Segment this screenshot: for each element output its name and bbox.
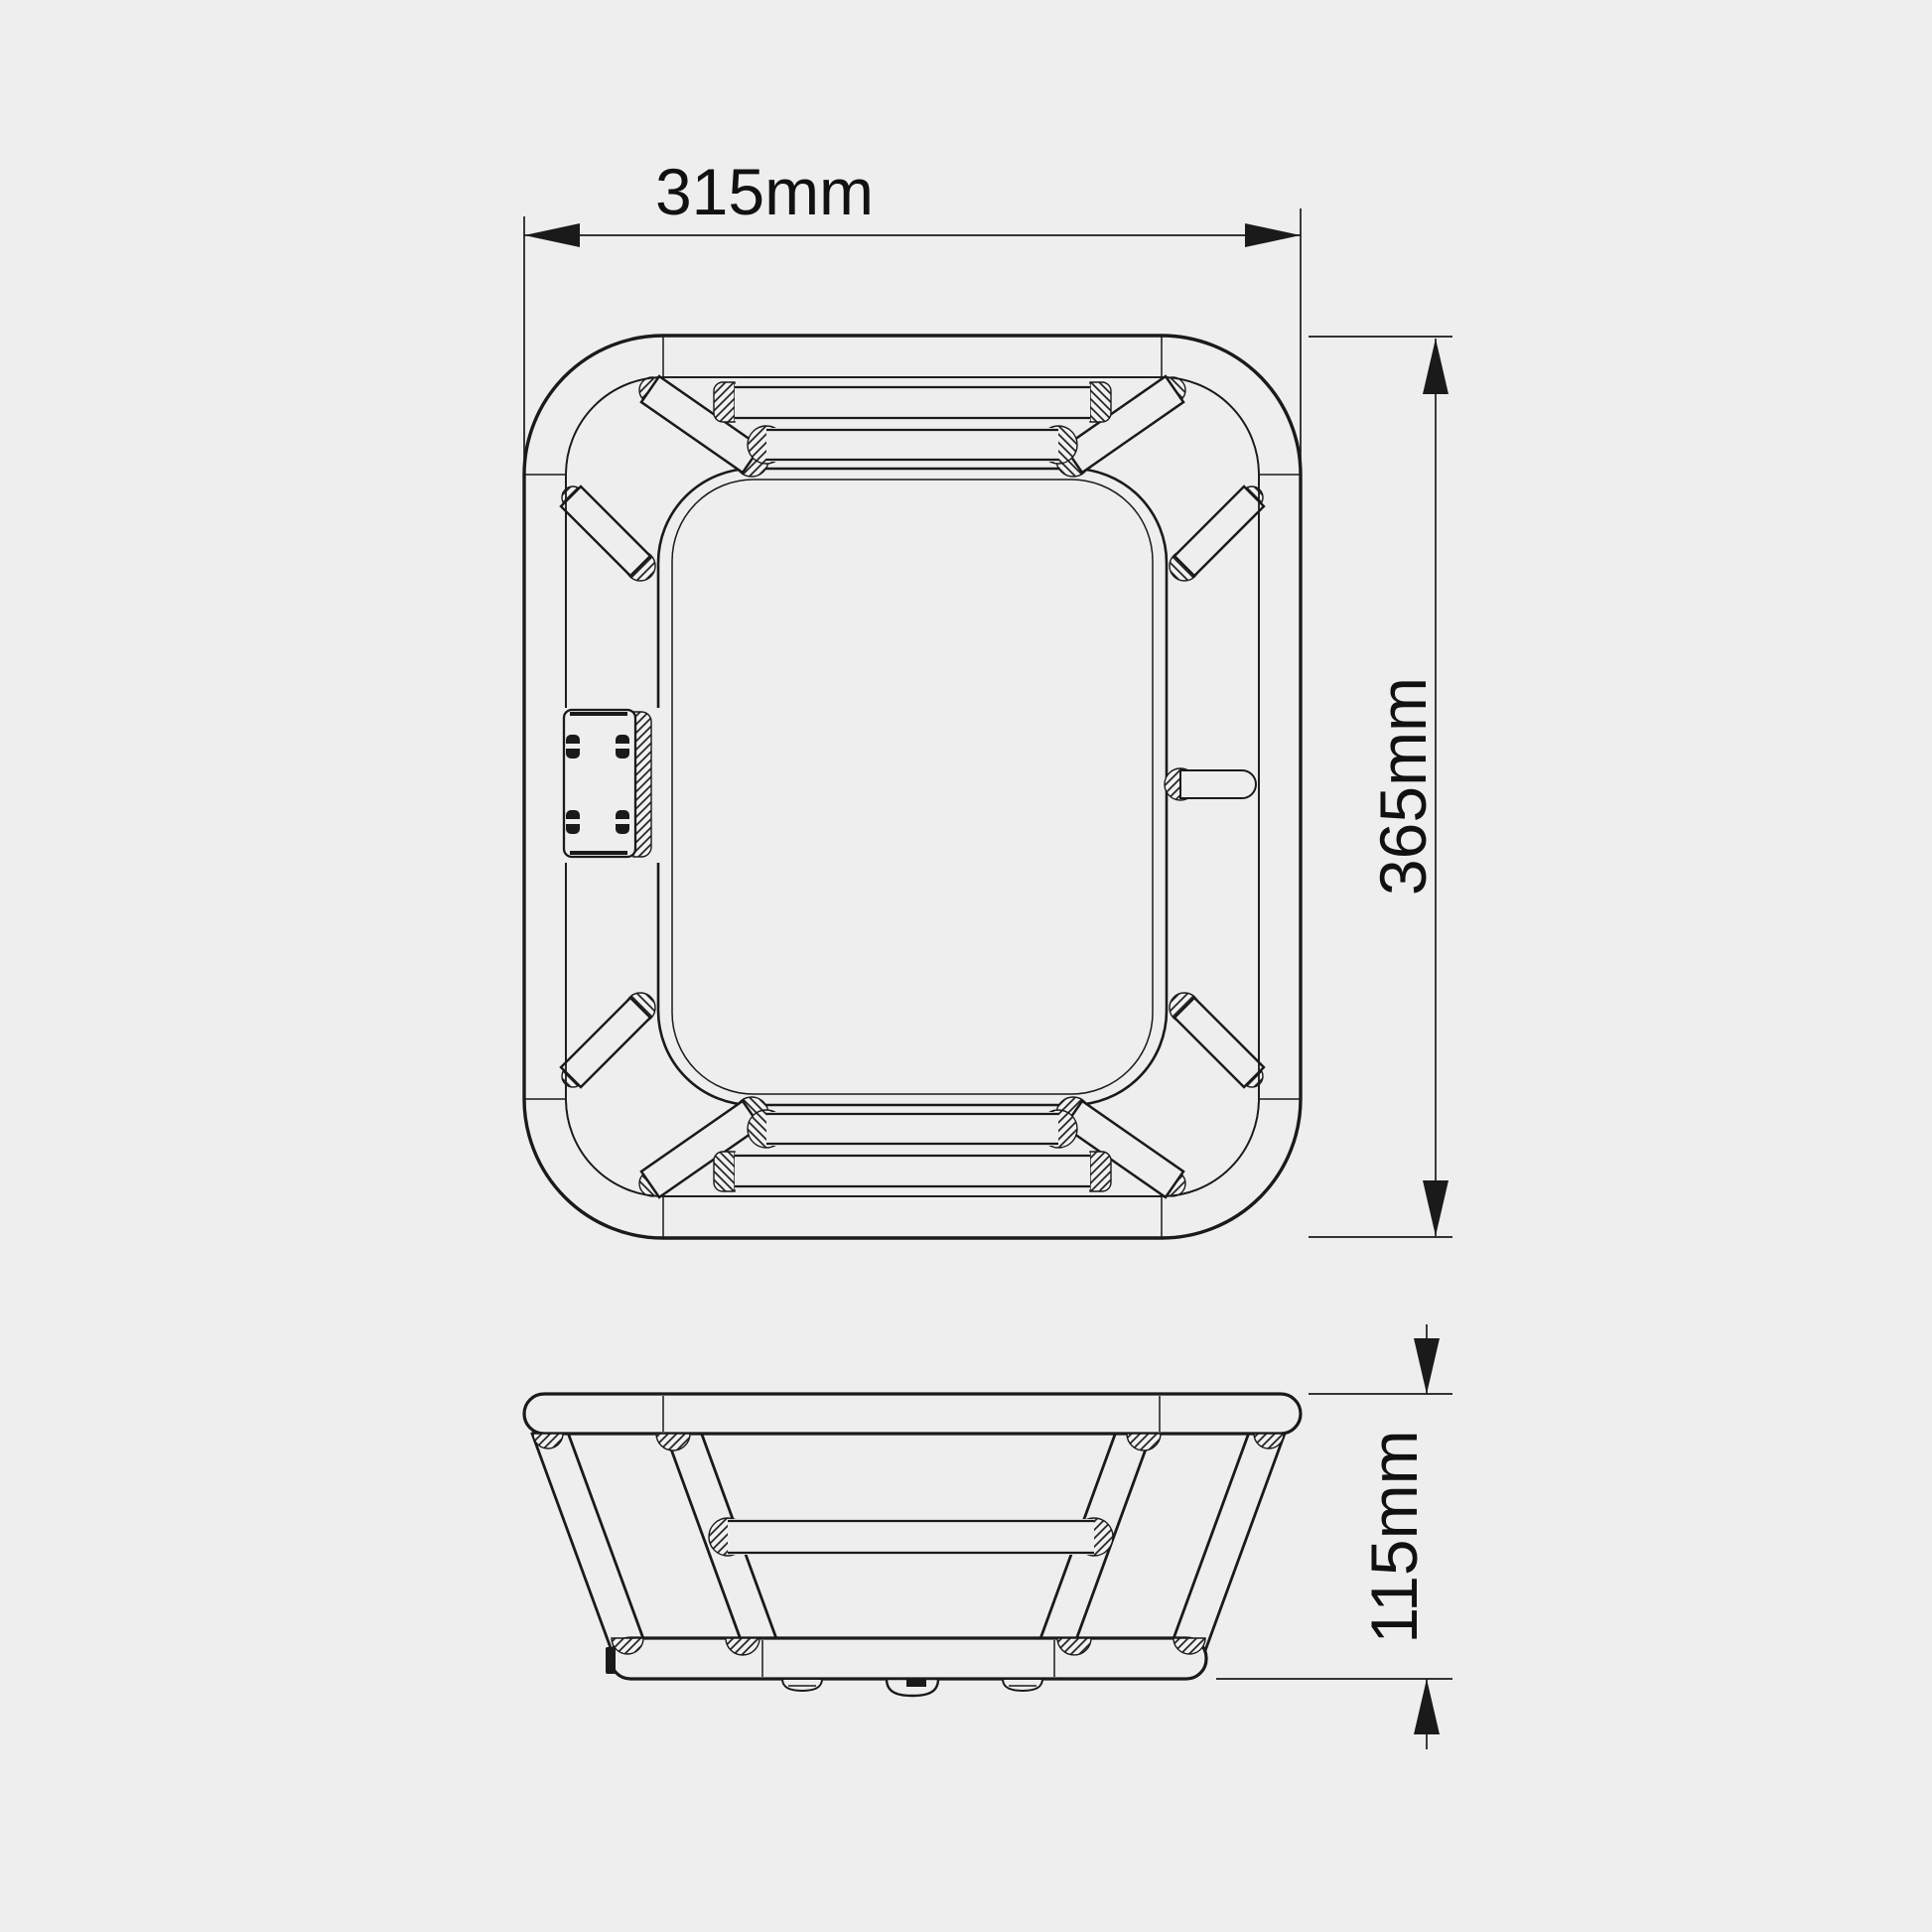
arrowhead-up (1423, 339, 1449, 394)
arrowhead-right (1245, 223, 1301, 247)
plate-face (564, 710, 635, 857)
side-peg (1165, 768, 1256, 800)
cross-rod (709, 1518, 1113, 1556)
arrowhead-left (524, 223, 580, 247)
arrowhead-down (1414, 1338, 1440, 1394)
arrowhead-up (1414, 1679, 1440, 1734)
side-view (524, 1394, 1301, 1696)
end-tab (606, 1647, 616, 1674)
plan-view (524, 336, 1301, 1238)
depth-label: 115mm (1357, 1430, 1431, 1643)
arrowhead-down (1423, 1180, 1449, 1236)
page: 315mm 365mm 115mm (0, 0, 1932, 1932)
foot (1003, 1679, 1042, 1691)
mounting-plate (562, 708, 661, 863)
depth-dimension: 115mm (1216, 1324, 1452, 1749)
width-label: 315mm (655, 155, 874, 228)
height-label: 365mm (1366, 677, 1440, 896)
foot (782, 1679, 822, 1691)
height-dimension: 365mm (1309, 337, 1452, 1237)
bottom-tube (611, 1638, 1206, 1679)
inner-frame-highlight (672, 480, 1153, 1094)
technical-drawing-canvas: 315mm 365mm 115mm (0, 0, 1932, 1932)
top-tube (524, 1394, 1301, 1434)
